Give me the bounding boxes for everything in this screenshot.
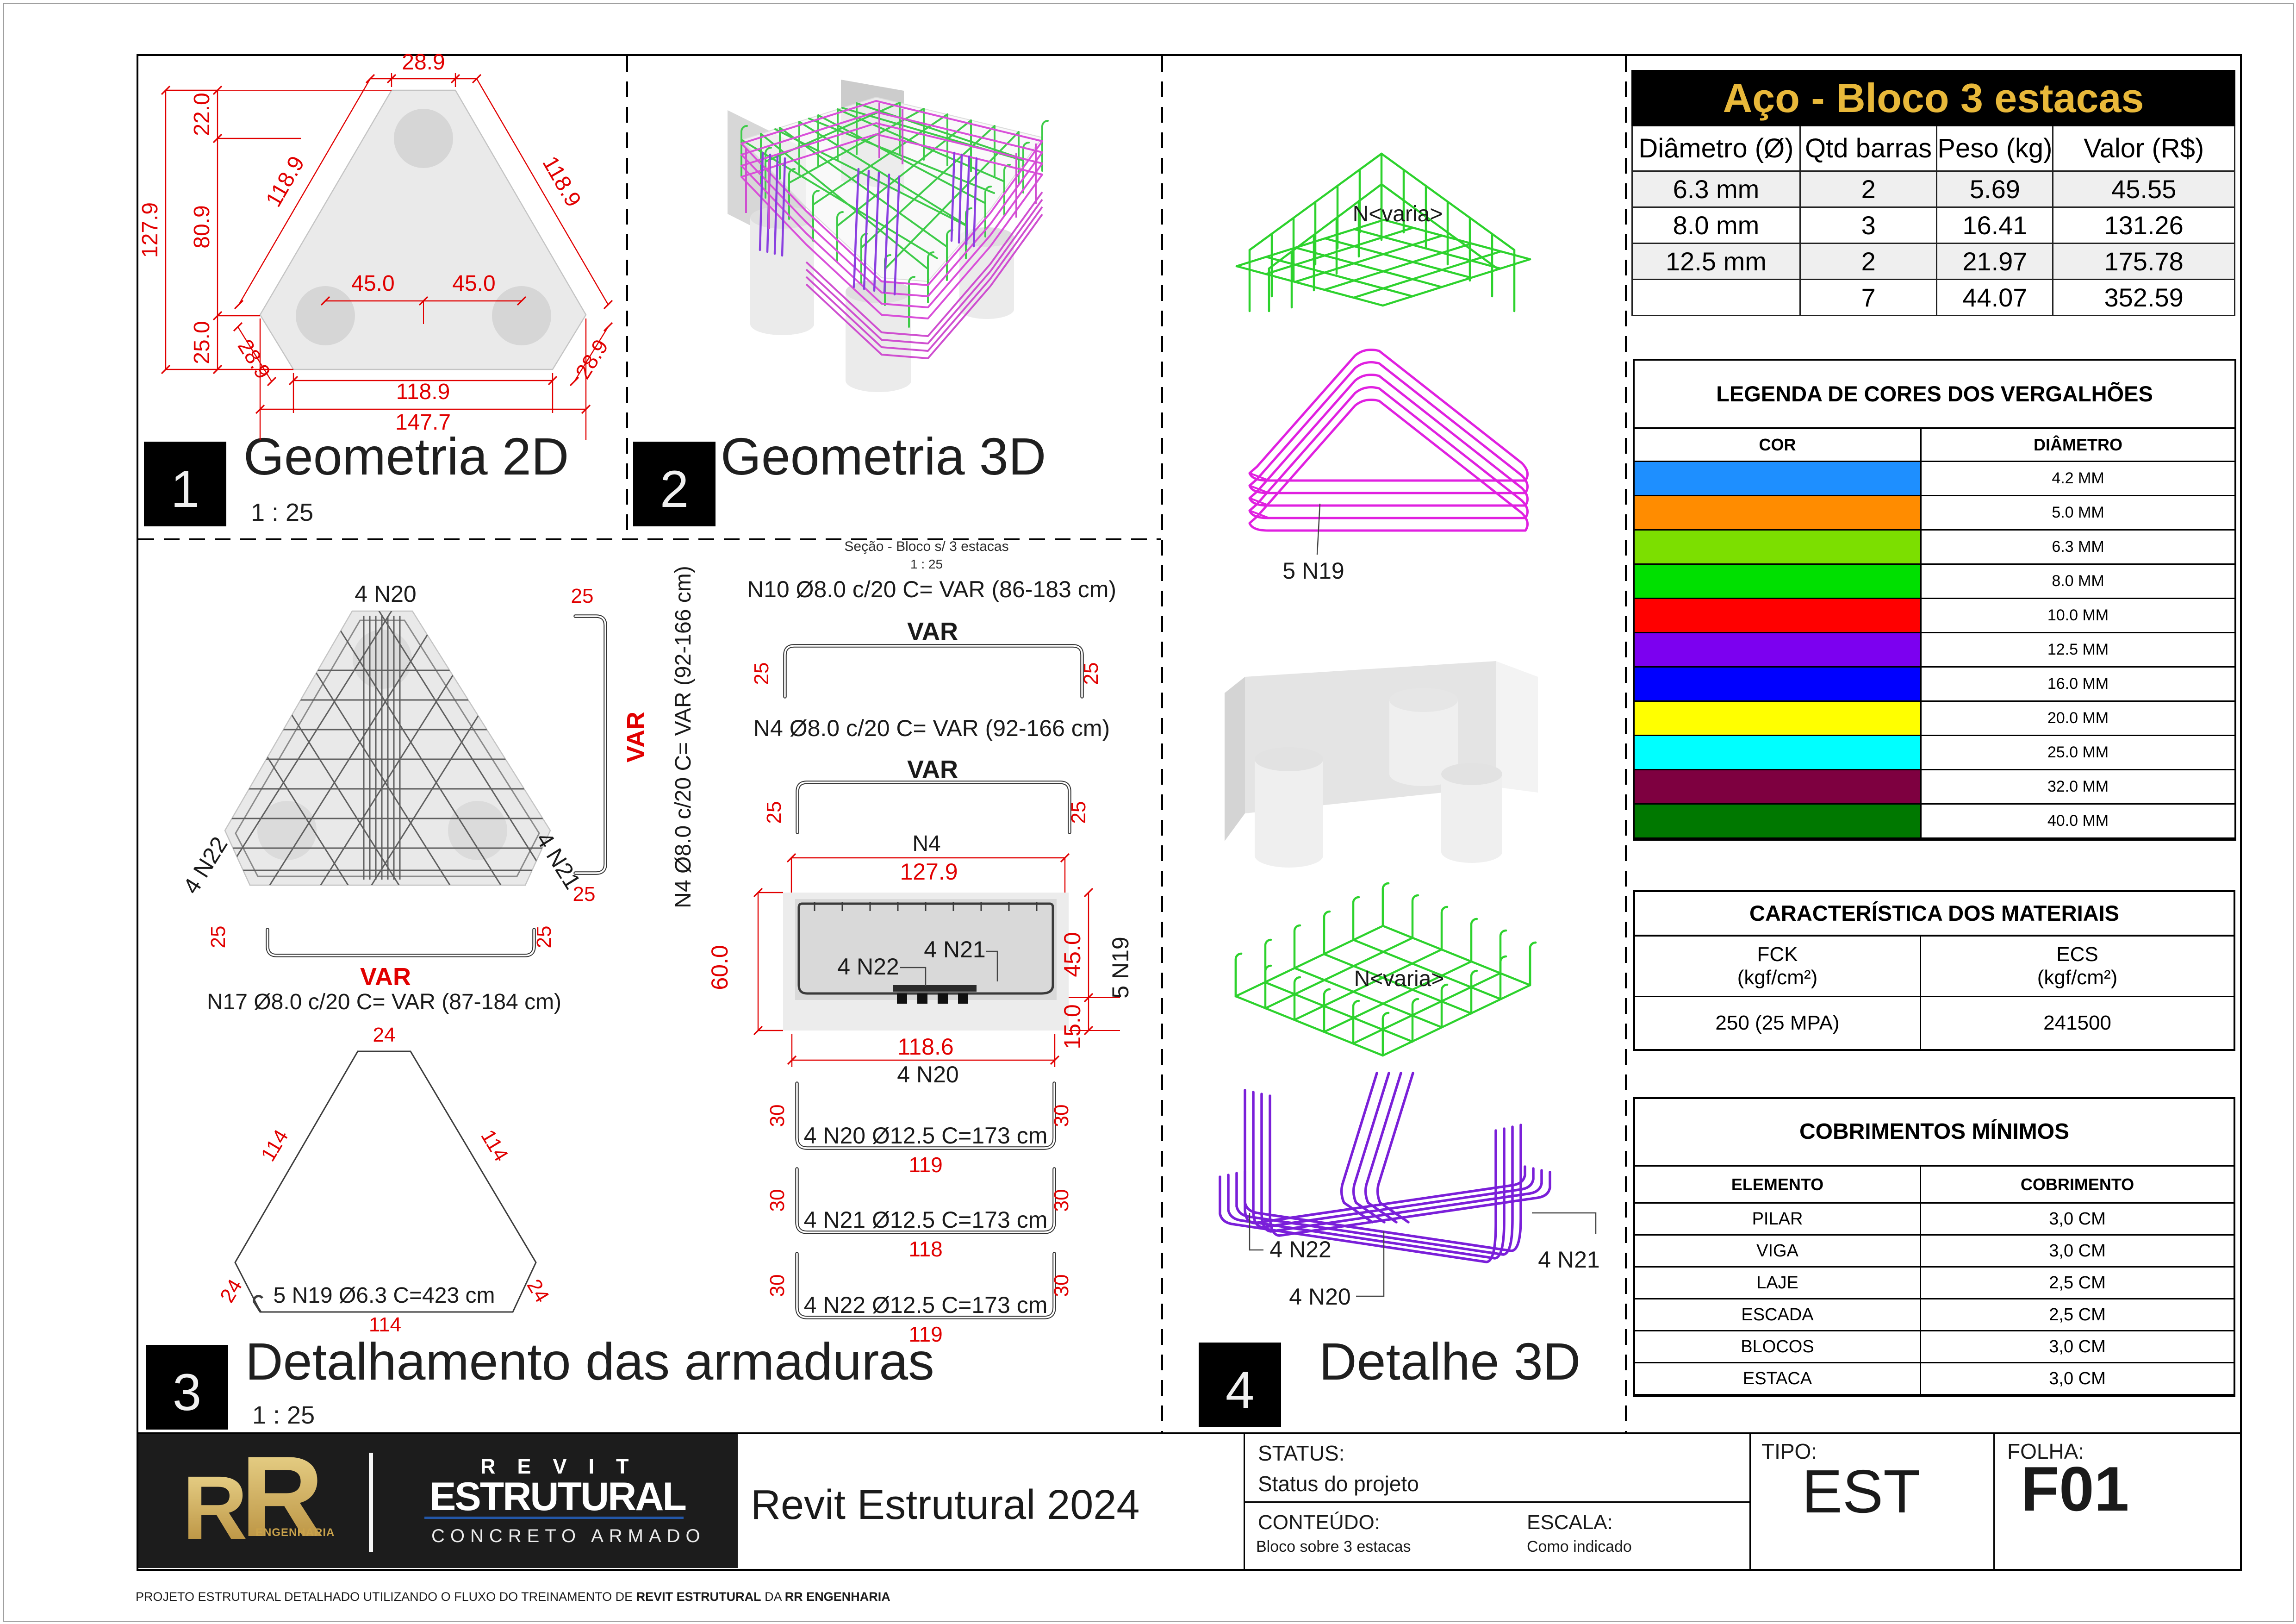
svg-text:114: 114 <box>369 1313 401 1336</box>
svg-text:30: 30 <box>766 1189 789 1212</box>
svg-text:30: 30 <box>766 1274 789 1297</box>
svg-text:4 N20: 4 N20 <box>897 1062 958 1087</box>
svg-text:118: 118 <box>908 1237 942 1261</box>
svg-text:25: 25 <box>1067 801 1090 824</box>
svg-text:45.0: 45.0 <box>452 271 495 296</box>
svg-text:VAR: VAR <box>907 618 958 645</box>
svg-text:24: 24 <box>373 1024 396 1046</box>
svg-text:127.9: 127.9 <box>900 859 958 885</box>
svg-text:4 N21: 4 N21 <box>924 937 985 962</box>
svg-text:25: 25 <box>1080 662 1102 685</box>
svg-text:30: 30 <box>766 1105 789 1127</box>
svg-text:N4 Ø8.0 c/20 C= VAR (92-166 cm: N4 Ø8.0 c/20 C= VAR (92-166 cm) <box>753 715 1110 741</box>
svg-text:114: 114 <box>257 1126 293 1165</box>
svg-text:30: 30 <box>1050 1274 1073 1297</box>
svg-text:25: 25 <box>573 883 596 906</box>
svg-text:VAR: VAR <box>360 963 411 991</box>
svg-text:VAR: VAR <box>907 756 958 783</box>
svg-text:28.9: 28.9 <box>402 50 445 75</box>
svg-text:45.0: 45.0 <box>1059 932 1085 977</box>
svg-text:28.9: 28.9 <box>233 335 276 383</box>
svg-text:80.9: 80.9 <box>190 205 214 248</box>
svg-text:1 : 25: 1 : 25 <box>910 557 943 571</box>
svg-text:N4: N4 <box>912 831 940 856</box>
svg-text:5 N19: 5 N19 <box>1108 937 1133 998</box>
svg-text:119: 119 <box>908 1322 942 1346</box>
svg-text:4 N20: 4 N20 <box>355 581 416 607</box>
svg-text:5 N19: 5 N19 <box>1282 558 1344 584</box>
svg-text:4 N21: 4 N21 <box>1538 1247 1599 1273</box>
svg-text:25: 25 <box>533 926 555 949</box>
svg-text:N4 Ø8.0 c/20 C= VAR (92-166 cm: N4 Ø8.0 c/20 C= VAR (92-166 cm) <box>671 566 696 908</box>
svg-text:N10 Ø8.0 c/20 C= VAR (86-183 c: N10 Ø8.0 c/20 C= VAR (86-183 cm) <box>747 576 1116 602</box>
svg-text:4 N22: 4 N22 <box>178 832 232 899</box>
svg-text:N<varia>: N<varia> <box>1354 967 1444 991</box>
svg-text:114: 114 <box>476 1126 512 1165</box>
svg-text:60.0: 60.0 <box>707 945 733 990</box>
svg-text:119: 119 <box>908 1153 942 1177</box>
svg-text:4 N20 Ø12.5 C=173 cm: 4 N20 Ø12.5 C=173 cm <box>804 1123 1048 1149</box>
svg-text:24: 24 <box>216 1275 247 1306</box>
svg-text:4 N20: 4 N20 <box>1289 1284 1350 1310</box>
svg-text:4 N21 Ø12.5 C=173 cm: 4 N21 Ø12.5 C=173 cm <box>804 1207 1048 1233</box>
svg-text:25.0: 25.0 <box>190 321 214 364</box>
svg-text:127.9: 127.9 <box>138 202 162 258</box>
svg-text:25: 25 <box>207 926 230 949</box>
svg-text:25: 25 <box>763 801 785 824</box>
svg-text:15.0: 15.0 <box>1059 1004 1085 1049</box>
svg-text:4 N22: 4 N22 <box>1269 1237 1331 1262</box>
svg-text:118.9: 118.9 <box>396 380 450 404</box>
svg-text:4 N22: 4 N22 <box>837 954 899 980</box>
svg-text:118.6: 118.6 <box>897 1034 953 1060</box>
svg-text:45.0: 45.0 <box>351 271 394 296</box>
svg-text:22.0: 22.0 <box>190 93 214 136</box>
svg-text:25: 25 <box>571 585 594 607</box>
svg-text:118.9: 118.9 <box>261 152 309 211</box>
svg-text:118.9: 118.9 <box>537 152 585 211</box>
svg-text:30: 30 <box>1050 1189 1073 1212</box>
svg-text:4 N22 Ø12.5 C=173 cm: 4 N22 Ø12.5 C=173 cm <box>804 1292 1048 1318</box>
svg-text:N<varia>: N<varia> <box>1353 202 1443 226</box>
svg-text:25: 25 <box>750 662 773 685</box>
svg-text:28.9: 28.9 <box>571 335 613 383</box>
svg-text:VAR: VAR <box>622 712 650 762</box>
svg-text:30: 30 <box>1050 1105 1073 1127</box>
svg-text:5 N19 Ø6.3 C=423 cm: 5 N19 Ø6.3 C=423 cm <box>274 1283 495 1308</box>
svg-text:Seção - Bloco s/ 3 estacas: Seção - Bloco s/ 3 estacas <box>844 539 1008 554</box>
svg-text:147.7: 147.7 <box>395 410 451 435</box>
svg-text:N17 Ø8.0 c/20 C= VAR (87-184 c: N17 Ø8.0 c/20 C= VAR (87-184 cm) <box>207 990 561 1014</box>
